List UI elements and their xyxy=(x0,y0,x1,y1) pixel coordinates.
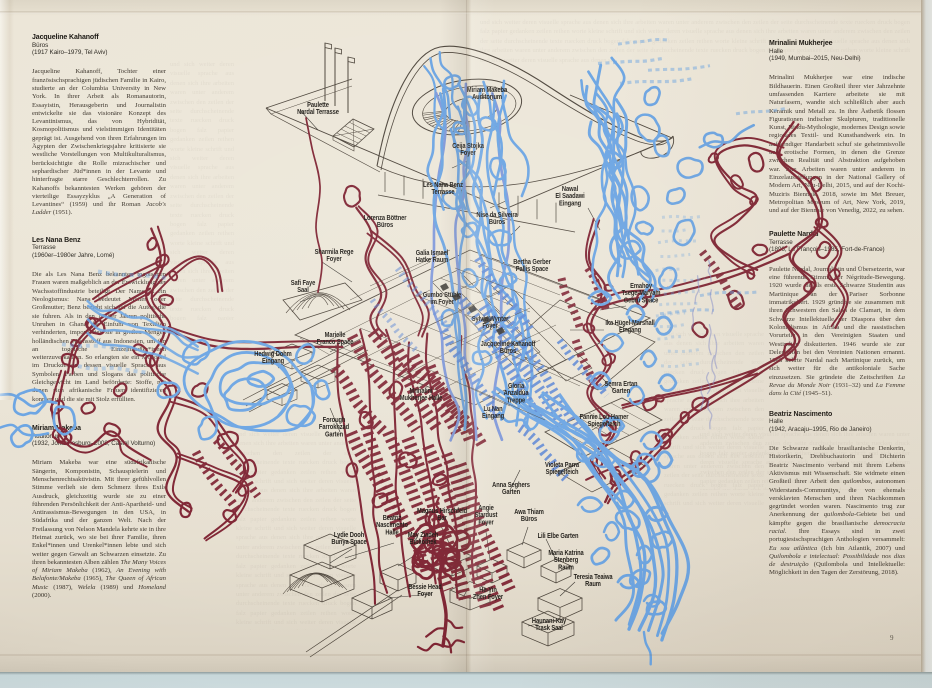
svg-text:Awa ThiamBüros: Awa ThiamBüros xyxy=(514,508,544,523)
svg-text:Haunani-KayTrask Saal: Haunani-KayTrask Saal xyxy=(532,617,567,632)
svg-text:Ika Hügel-MarshallEingang: Ika Hügel-MarshallEingang xyxy=(605,319,655,334)
svg-text:9: 9 xyxy=(890,634,894,642)
svg-text:Lili Elbe Garten: Lili Elbe Garten xyxy=(538,532,579,540)
svg-text:Bessie HeadFoyer: Bessie HeadFoyer xyxy=(408,583,441,598)
svg-text:Sharmila RegeFoyer: Sharmila RegeFoyer xyxy=(315,248,354,263)
svg-text:Bertha GerberPallis Space: Bertha GerberPallis Space xyxy=(513,258,551,273)
svg-text:Maria KatrinaStenbergRaum: Maria KatrinaStenbergRaum xyxy=(548,549,584,571)
svg-text:MarielleFranco Space: MarielleFranco Space xyxy=(317,331,354,346)
svg-text:Lydie DoohBunya Space: Lydie DoohBunya Space xyxy=(331,531,367,546)
svg-text:PauletteNardal Terrasse: PauletteNardal Terrasse xyxy=(297,101,339,116)
svg-text:Semra ErtanGarten: Semra ErtanGarten xyxy=(605,380,638,395)
svg-text:NawalEl SaadawiEingang: NawalEl SaadawiEingang xyxy=(555,185,584,207)
svg-text:Violeta ParraSpiegelteich: Violeta ParraSpiegelteich xyxy=(545,461,579,476)
svg-text:May ZiadehBibliothek: May ZiadehBibliothek xyxy=(408,531,439,546)
svg-text:Teresia TeaiwaRaum: Teresia TeaiwaRaum xyxy=(574,573,613,588)
svg-text:Anna SeghersGarten: Anna SeghersGarten xyxy=(492,481,530,496)
